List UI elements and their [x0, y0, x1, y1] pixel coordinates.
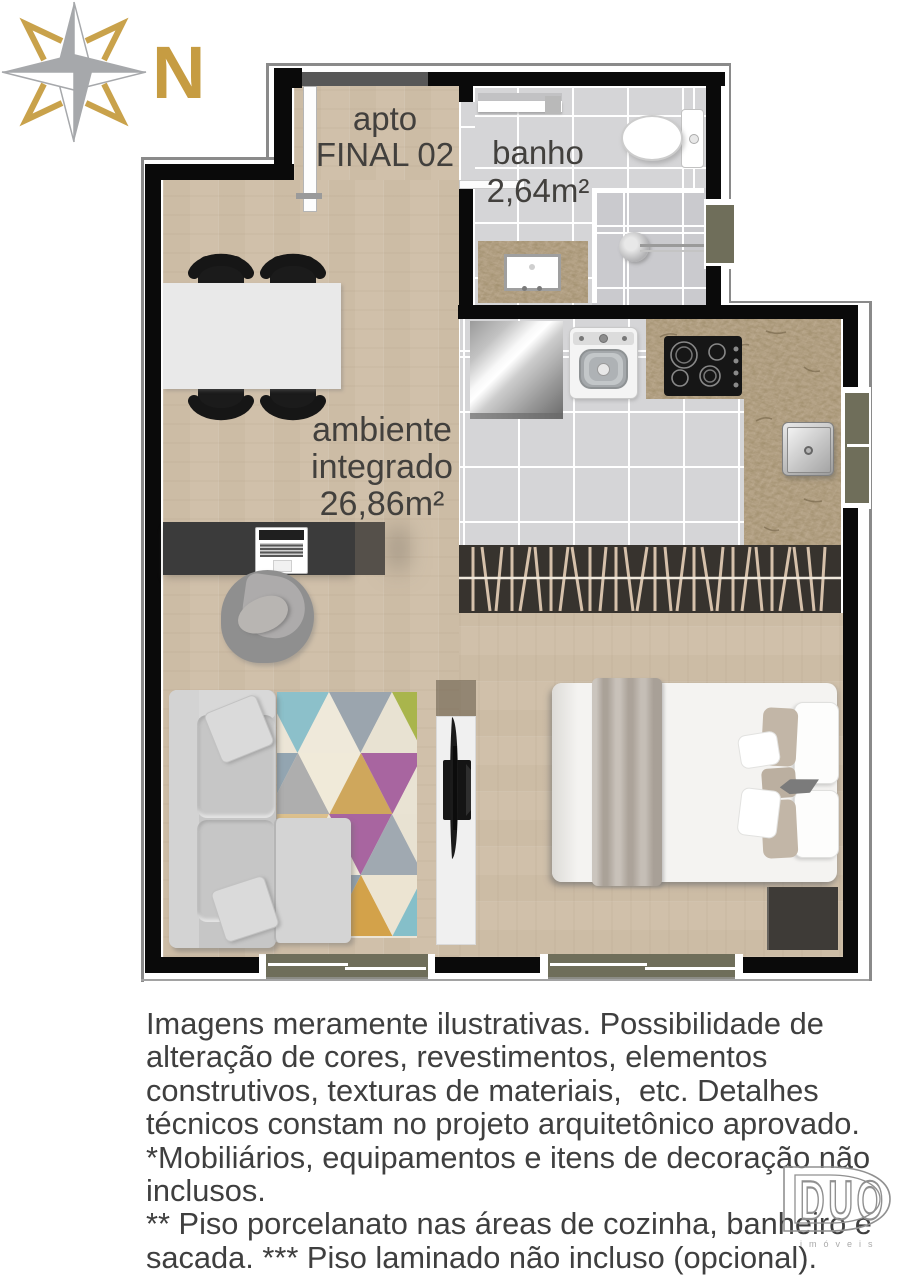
svg-text:imóveis: imóveis — [800, 1239, 880, 1249]
svg-text:DUO: DUO — [800, 1170, 887, 1231]
svg-text:N: N — [152, 31, 205, 114]
